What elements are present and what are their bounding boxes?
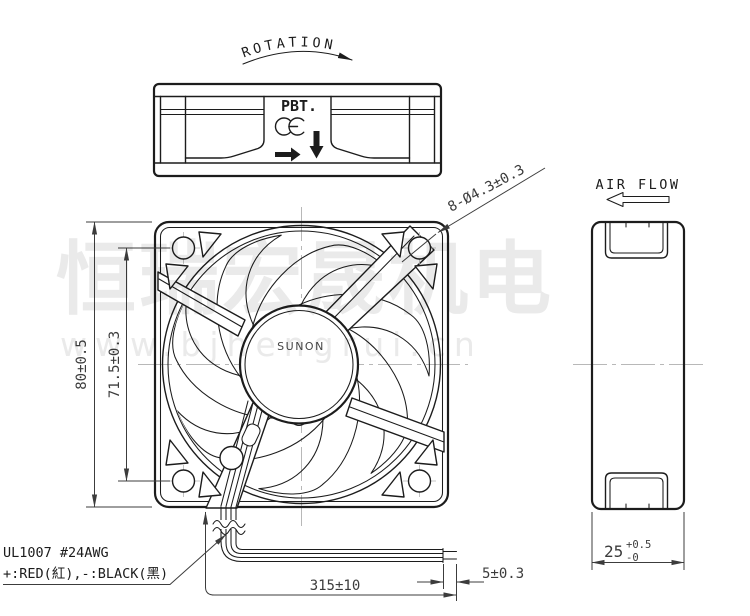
strip-length-label: 5±0.3 [482,566,524,582]
airflow-direction-arrow-icon [310,131,324,159]
top-view: ROTATION PBT. [154,34,441,176]
drawing-canvas: ROTATION PBT. [0,0,750,616]
lead-length-label: 315±10 [310,578,361,594]
mounting-hole [173,470,195,492]
airflow-arrow-icon [607,193,669,207]
airflow-label: AIR FLOW [595,177,680,193]
hub-brand-label: SUNON [277,340,325,353]
ce-mark-icon [275,118,303,135]
strut-right-rib [350,407,444,442]
dimension-depth: 25 +0.5 -0 [592,512,684,570]
wire-spec: UL1007 #24AWG +:RED(紅),-:BLACK(黑) [3,535,226,585]
fan-hub [240,306,358,424]
rotation-label: ROTATION [240,34,338,61]
channel-component [220,447,243,470]
right-panel-edge [331,97,410,159]
side-view-outline [592,222,684,509]
left-panel-edge [186,97,265,159]
bottom-boss-recess-inner [610,478,663,508]
corner-cutout [166,440,188,465]
technical-drawing: ROTATION PBT. [0,0,750,616]
height-dim-label: 80±0.5 [74,339,90,390]
hole-pitch-dim-label: 71.5±0.3 [107,331,123,398]
material-label: PBT. [281,97,317,115]
lead-wires [213,507,457,563]
mounting-holes-label: 8-Ø4.3±0.3 [445,162,527,216]
top-boss-recess-inner [610,223,663,253]
mounting-hole [409,470,431,492]
front-view: SUNON [151,219,448,508]
side-view: AIR FLOW [592,177,684,509]
wire-spec-line1: UL1007 #24AWG [3,545,109,561]
corner-cutout [415,264,437,289]
depth-dim-label: 25 +0.5 -0 [604,533,661,564]
wire-spec-line2: +:RED(紅),-:BLACK(黑) [3,566,168,582]
rotation-direction-arrow-icon [275,148,301,162]
mounting-hole [173,237,195,259]
